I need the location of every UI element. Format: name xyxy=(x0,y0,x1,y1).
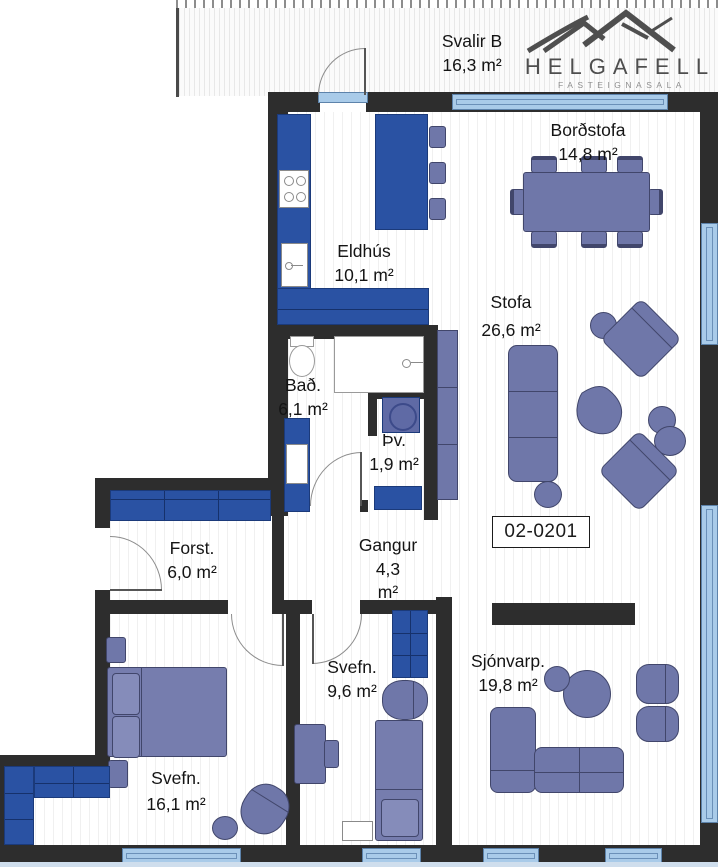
dining-chair xyxy=(531,231,557,248)
balcony-side-wall xyxy=(176,8,179,97)
bar-stool xyxy=(429,126,446,148)
balcony-door-leaf xyxy=(364,48,366,95)
dining-chair xyxy=(648,189,663,215)
room-label-thvottahus: Þv.1,9 m² xyxy=(369,429,419,476)
wall-bath-east xyxy=(424,325,438,520)
corner-sofa-right xyxy=(534,747,624,793)
window-tv-east xyxy=(701,505,718,823)
bath-sink-icon xyxy=(286,444,308,484)
wardrobe xyxy=(4,766,34,845)
wall-hall-south-b xyxy=(283,600,312,614)
floor-plan: HELGAFELL FASTEIGNASALA xyxy=(0,0,718,867)
room-label-bordstofa: Borðstofa14,8 m² xyxy=(551,119,626,166)
dining-chair xyxy=(617,231,643,248)
room-label-forstofa: Forst.6,0 m² xyxy=(167,537,217,584)
coffee-table xyxy=(574,383,628,439)
wall-tv-divider xyxy=(436,597,452,845)
stove-icon xyxy=(279,170,309,208)
double-bed xyxy=(107,667,227,757)
window-dining xyxy=(452,94,668,110)
bedroom16-door-leaf xyxy=(282,614,284,666)
entrance-door-leaf xyxy=(110,589,162,591)
media-wall xyxy=(492,603,635,625)
entry-closet xyxy=(110,490,271,521)
shower-icon xyxy=(334,336,424,393)
brand-tagline: FASTEIGNASALA xyxy=(558,80,686,90)
room-label-svefn-9: Svefn.9,6 m² xyxy=(327,656,377,703)
side-table xyxy=(544,666,570,692)
dining-chair xyxy=(581,231,607,248)
armchair xyxy=(382,680,428,720)
kitchen-counter-bottom xyxy=(277,288,429,325)
dining-table xyxy=(523,172,650,232)
bar-stool xyxy=(429,162,446,184)
nightstand xyxy=(106,637,126,663)
unit-number-badge: 02-0201 xyxy=(492,516,590,548)
entrance-opening xyxy=(95,528,110,590)
kitchen-island xyxy=(375,114,428,230)
wardrobe xyxy=(392,610,428,678)
brand-name: HELGAFELL xyxy=(525,54,715,80)
single-bed xyxy=(375,720,423,841)
toilet-bowl-icon xyxy=(289,345,315,377)
room-label-svalir: Svalir B16,3 m² xyxy=(442,30,502,77)
room-label-sjonvarp: Sjónvarp.19,8 m² xyxy=(471,650,545,697)
room-label-svefn-16: Svefn.16,1 m² xyxy=(146,765,205,817)
room-label-stofa: Stofa26,6 m² xyxy=(481,288,540,344)
nightstand xyxy=(108,760,128,788)
armchair xyxy=(636,664,679,704)
mountains-icon xyxy=(522,4,718,56)
bath-door-leaf xyxy=(360,452,362,506)
room-label-bad: Bað.6,1 m² xyxy=(278,374,328,421)
armchair xyxy=(636,706,679,742)
desk-chair xyxy=(324,740,339,768)
wardrobe xyxy=(34,766,110,798)
sofa xyxy=(508,345,558,482)
room-label-gangur: Gangur 4,3 m² xyxy=(359,534,417,605)
corner-sofa-left xyxy=(490,707,536,793)
wall-hall-south-a xyxy=(95,600,228,614)
room-label-eldhus: Eldhús10,1 m² xyxy=(334,240,393,287)
tv-shelf xyxy=(437,330,458,500)
window-living-east xyxy=(701,223,718,345)
bedroom9-door-leaf xyxy=(312,614,314,664)
pouf xyxy=(534,481,562,508)
washing-machine-icon xyxy=(382,397,420,433)
balcony-door-threshold xyxy=(320,103,366,112)
floor-box xyxy=(342,821,373,841)
round-table xyxy=(563,670,611,718)
stool xyxy=(212,816,238,840)
laundry-counter xyxy=(374,486,422,510)
desk xyxy=(294,724,326,784)
bar-stool xyxy=(429,198,446,220)
wall-hall-divider xyxy=(272,492,284,614)
kitchen-sink-icon xyxy=(281,243,308,287)
facade-edge xyxy=(0,862,718,867)
